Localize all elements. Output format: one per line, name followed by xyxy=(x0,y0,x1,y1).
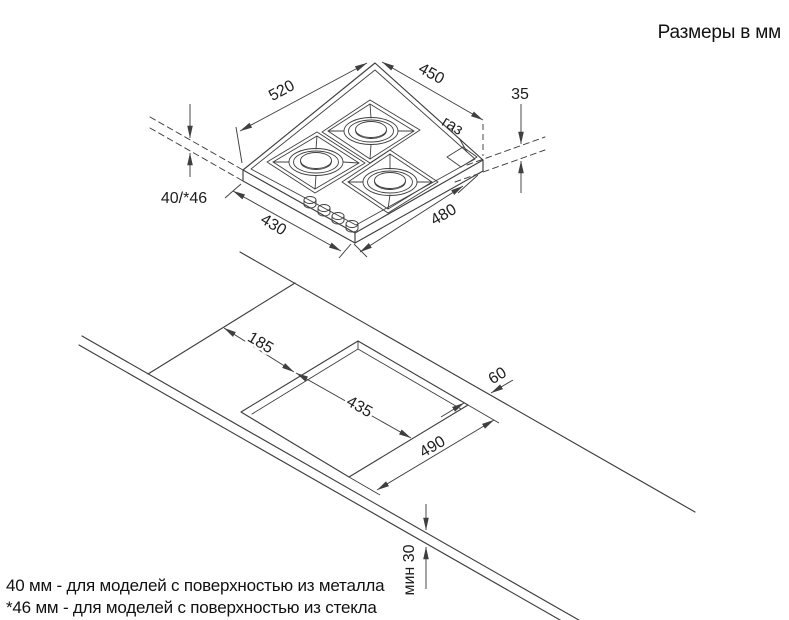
hob-left-face xyxy=(243,170,355,243)
gas-callout: газ xyxy=(439,113,467,152)
worktop-cutout-view xyxy=(79,252,695,620)
worktop-back-edge xyxy=(240,252,695,512)
dim-cutout-side-offset: 185 xyxy=(224,328,294,372)
dim-label-435: 435 xyxy=(343,393,375,421)
ref-line-left-bottom xyxy=(150,128,243,181)
dim-label-430: 430 xyxy=(257,211,289,239)
dim-gas-offset: 35 xyxy=(511,86,529,193)
footnote-metal: 40 мм - для моделей с поверхностью из ме… xyxy=(6,576,385,595)
knob xyxy=(346,221,358,233)
knob xyxy=(332,213,344,225)
dim-worktop-min-thickness: мин 30 xyxy=(401,504,426,596)
dim-label-40-46: 40/*46 xyxy=(161,190,207,207)
burner-front xyxy=(342,150,438,213)
worktop-left-edge xyxy=(148,283,295,374)
ref-line-left-top xyxy=(150,117,243,170)
dim-cutout-back-gap: 60 xyxy=(441,364,513,417)
technical-drawing: 520 450 газ 35 40/*46 430 480 xyxy=(0,0,789,620)
dim-label-185: 185 xyxy=(244,329,276,357)
hob-right-face xyxy=(355,160,483,243)
dim-hob-height: 40/*46 xyxy=(161,104,207,207)
hob-isometric-view xyxy=(150,63,545,243)
dim-label-min-30: мин 30 xyxy=(401,544,418,595)
dim-cutout-depth: 490 xyxy=(349,405,499,495)
gas-label: газ xyxy=(439,113,466,139)
dim-label-35: 35 xyxy=(511,86,529,103)
ref-line-right-top xyxy=(467,137,545,165)
dim-cutout-width: 435 xyxy=(296,373,411,438)
installation-drawing: 520 450 газ 35 40/*46 430 480 xyxy=(0,0,789,620)
dim-label-520: 520 xyxy=(266,77,298,105)
ref-line-right-bottom xyxy=(455,150,545,182)
drawing-title: Размеры в мм xyxy=(658,22,781,43)
footnote-glass: *46 мм - для моделей с поверхностью из с… xyxy=(6,598,377,617)
